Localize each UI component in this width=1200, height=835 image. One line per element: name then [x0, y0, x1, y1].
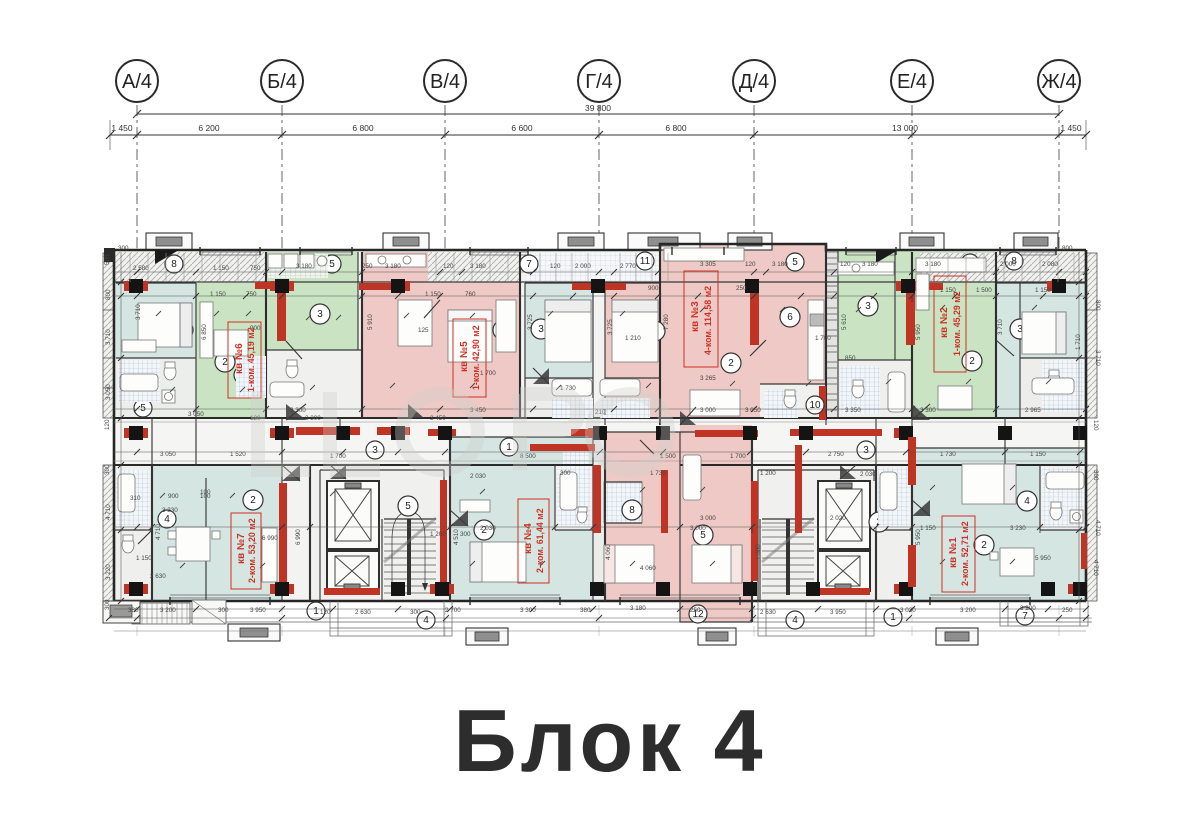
- svg-text:800: 800: [1094, 300, 1101, 311]
- svg-text:2-ком. 52,71 м2: 2-ком. 52,71 м2: [960, 521, 970, 586]
- svg-text:2 030: 2 030: [470, 473, 486, 480]
- svg-text:120: 120: [840, 261, 851, 268]
- svg-text:Ж/4: Ж/4: [1041, 71, 1076, 93]
- svg-text:2 580: 2 580: [133, 265, 149, 272]
- svg-text:4 710: 4 710: [1092, 560, 1099, 576]
- svg-text:4 710: 4 710: [155, 524, 162, 540]
- svg-text:6: 6: [787, 312, 793, 323]
- svg-text:6 200: 6 200: [198, 123, 220, 133]
- svg-text:8: 8: [629, 505, 635, 516]
- svg-text:3 230: 3 230: [1010, 525, 1026, 532]
- svg-text:кв №4: кв №4: [523, 523, 534, 554]
- svg-text:6 800: 6 800: [665, 123, 687, 133]
- svg-text:800: 800: [1062, 245, 1073, 252]
- svg-text:3 220: 3 220: [105, 564, 112, 580]
- svg-text:3 725: 3 725: [527, 314, 534, 330]
- svg-text:250: 250: [362, 263, 373, 270]
- svg-text:300: 300: [410, 609, 421, 616]
- svg-text:3: 3: [865, 301, 871, 312]
- svg-text:5 910: 5 910: [367, 314, 374, 330]
- svg-text:1 210: 1 210: [625, 335, 641, 342]
- svg-text:250: 250: [736, 285, 747, 292]
- svg-text:900: 900: [648, 285, 659, 292]
- svg-text:1 700: 1 700: [730, 453, 746, 460]
- svg-text:3 180: 3 180: [630, 605, 646, 612]
- svg-text:500: 500: [104, 254, 111, 265]
- svg-text:3 950: 3 950: [830, 609, 846, 616]
- svg-text:Е/4: Е/4: [897, 71, 927, 93]
- svg-text:1 300: 1 300: [755, 544, 762, 560]
- svg-text:3 265: 3 265: [700, 375, 716, 382]
- svg-text:6 800: 6 800: [352, 123, 374, 133]
- svg-text:120: 120: [320, 609, 331, 616]
- svg-text:3: 3: [538, 324, 544, 335]
- svg-text:кв №6: кв №6: [234, 343, 245, 374]
- svg-text:3 230: 3 230: [162, 507, 178, 514]
- svg-text:120: 120: [1092, 420, 1099, 431]
- svg-text:кв №3: кв №3: [690, 301, 701, 332]
- svg-text:3 180: 3 180: [296, 263, 312, 270]
- svg-text:4: 4: [423, 615, 429, 626]
- svg-text:2 630: 2 630: [355, 609, 371, 616]
- svg-text:2 000: 2 000: [1000, 261, 1016, 268]
- svg-text:4: 4: [1024, 496, 1030, 507]
- svg-text:13 000: 13 000: [892, 123, 918, 133]
- svg-text:3 180: 3 180: [470, 263, 486, 270]
- svg-text:11: 11: [640, 256, 651, 267]
- svg-text:7: 7: [526, 259, 532, 270]
- svg-text:Д/4: Д/4: [739, 71, 769, 93]
- svg-text:3 300: 3 300: [920, 407, 936, 414]
- svg-text:3 710: 3 710: [105, 329, 112, 345]
- svg-text:2 080: 2 080: [1042, 261, 1058, 268]
- svg-text:2: 2: [981, 540, 987, 551]
- svg-text:кв №5: кв №5: [459, 341, 470, 372]
- svg-text:1-ком. 45,19 м2: 1-ком. 45,19 м2: [246, 327, 256, 392]
- svg-text:7: 7: [1022, 611, 1028, 622]
- svg-text:100: 100: [200, 493, 211, 500]
- svg-text:1-ком. 45,29 м2: 1-ком. 45,29 м2: [952, 291, 962, 356]
- svg-text:4-ком. 114,58 м2: 4-ком. 114,58 м2: [703, 286, 713, 355]
- svg-text:3 450: 3 450: [430, 415, 446, 422]
- svg-text:А/4: А/4: [122, 71, 152, 93]
- svg-text:1 150: 1 150: [136, 555, 152, 562]
- svg-text:2 965: 2 965: [1025, 407, 1041, 414]
- svg-text:1 200: 1 200: [760, 470, 776, 477]
- svg-text:120: 120: [550, 263, 561, 270]
- svg-text:2 630: 2 630: [150, 573, 166, 580]
- svg-text:2: 2: [969, 356, 975, 367]
- svg-text:1-ком. 42,90 м2: 1-ком. 42,90 м2: [471, 325, 481, 390]
- svg-text:1: 1: [506, 442, 512, 453]
- svg-text:4 060: 4 060: [640, 565, 656, 572]
- svg-text:4: 4: [164, 514, 170, 525]
- svg-text:5: 5: [329, 259, 335, 270]
- svg-text:850: 850: [845, 355, 856, 362]
- svg-text:кв №2: кв №2: [939, 307, 950, 338]
- svg-text:Г/4: Г/4: [585, 71, 613, 93]
- svg-text:250: 250: [690, 607, 701, 614]
- svg-text:120: 120: [745, 261, 756, 268]
- svg-text:1 450: 1 450: [1060, 123, 1082, 133]
- svg-text:4: 4: [792, 615, 798, 626]
- svg-text:3 710: 3 710: [1094, 350, 1101, 366]
- svg-text:1 730: 1 730: [650, 470, 666, 477]
- svg-text:2 020: 2 020: [830, 515, 846, 522]
- svg-text:2 030: 2 030: [860, 471, 876, 478]
- svg-text:800: 800: [105, 289, 112, 300]
- svg-text:5 950: 5 950: [1035, 555, 1051, 562]
- svg-text:4 710: 4 710: [105, 504, 112, 520]
- svg-text:3 180: 3 180: [862, 261, 878, 268]
- svg-text:3: 3: [372, 445, 378, 456]
- svg-text:300: 300: [560, 470, 571, 477]
- svg-text:В/4: В/4: [430, 71, 460, 93]
- svg-text:Б/4: Б/4: [267, 71, 297, 93]
- svg-text:3 180: 3 180: [925, 261, 941, 268]
- svg-text:3 710: 3 710: [997, 319, 1004, 335]
- svg-text:6 990: 6 990: [295, 529, 302, 545]
- svg-text:250: 250: [1062, 607, 1073, 614]
- svg-text:3 350: 3 350: [845, 407, 861, 414]
- svg-text:120: 120: [104, 419, 111, 430]
- svg-text:120: 120: [443, 263, 454, 270]
- svg-text:3 200: 3 200: [960, 607, 976, 614]
- svg-text:кв №1: кв №1: [948, 537, 959, 568]
- svg-text:5: 5: [140, 403, 146, 414]
- svg-text:5: 5: [405, 501, 411, 512]
- svg-text:3 000: 3 000: [700, 515, 716, 522]
- svg-text:1 710: 1 710: [1075, 334, 1082, 350]
- svg-text:1 150: 1 150: [1035, 287, 1051, 294]
- svg-text:2: 2: [222, 357, 228, 368]
- svg-text:2: 2: [250, 495, 256, 506]
- svg-text:7 280: 7 280: [663, 314, 670, 330]
- svg-text:2 030: 2 030: [480, 525, 496, 532]
- svg-text:760: 760: [465, 291, 476, 298]
- svg-text:8: 8: [171, 259, 177, 270]
- svg-text:300: 300: [460, 531, 471, 538]
- svg-text:900: 900: [168, 493, 179, 500]
- svg-text:750: 750: [250, 265, 261, 272]
- svg-text:39 800: 39 800: [585, 103, 611, 113]
- svg-text:3: 3: [863, 445, 869, 456]
- svg-text:3 300: 3 300: [305, 415, 321, 422]
- svg-text:4 510: 4 510: [453, 529, 460, 545]
- svg-text:1 150: 1 150: [210, 291, 226, 298]
- svg-text:3 030: 3 030: [900, 607, 916, 614]
- svg-text:2: 2: [728, 358, 734, 369]
- svg-text:3 180: 3 180: [385, 263, 401, 270]
- svg-text:5: 5: [792, 257, 798, 268]
- svg-text:2-ком. 53,20 м2: 2-ком. 53,20 м2: [247, 518, 257, 583]
- svg-text:1 200: 1 200: [430, 531, 446, 538]
- svg-text:3 000: 3 000: [700, 407, 716, 414]
- svg-text:3 305: 3 305: [700, 261, 716, 268]
- svg-text:4 060: 4 060: [605, 544, 612, 560]
- svg-text:2 770: 2 770: [620, 263, 636, 270]
- svg-text:310: 310: [130, 495, 141, 502]
- svg-text:3 050: 3 050: [105, 384, 112, 400]
- svg-text:2-ком. 61,44 м2: 2-ком. 61,44 м2: [535, 508, 545, 573]
- svg-text:кв №7: кв №7: [236, 533, 247, 564]
- svg-text:300: 300: [104, 464, 111, 475]
- svg-text:380: 380: [580, 607, 591, 614]
- svg-text:3 725: 3 725: [607, 319, 614, 335]
- svg-text:6 600: 6 600: [511, 123, 533, 133]
- svg-text:6 990: 6 990: [262, 535, 278, 542]
- svg-text:300: 300: [104, 599, 111, 610]
- svg-text:5 610: 5 610: [841, 314, 848, 330]
- svg-text:3 200: 3 200: [1020, 605, 1036, 612]
- svg-text:125: 125: [418, 327, 429, 334]
- svg-text:3 200: 3 200: [160, 607, 176, 614]
- svg-text:1 150: 1 150: [920, 525, 936, 532]
- svg-text:1 450: 1 450: [111, 123, 133, 133]
- svg-text:3 000: 3 000: [690, 525, 706, 532]
- svg-text:3 180: 3 180: [772, 261, 788, 268]
- svg-text:1 700: 1 700: [480, 370, 496, 377]
- svg-text:5 950: 5 950: [915, 324, 922, 340]
- svg-text:3: 3: [317, 309, 323, 320]
- svg-text:3 950: 3 950: [250, 607, 266, 614]
- svg-text:6 850: 6 850: [201, 324, 208, 340]
- svg-text:10: 10: [809, 400, 821, 411]
- svg-text:2 700: 2 700: [445, 607, 461, 614]
- svg-text:4 710: 4 710: [1094, 520, 1101, 536]
- svg-text:1: 1: [313, 606, 319, 617]
- svg-text:1 150: 1 150: [213, 265, 229, 272]
- svg-text:300: 300: [218, 607, 229, 614]
- svg-text:300: 300: [1092, 470, 1099, 481]
- svg-text:2 630: 2 630: [760, 609, 776, 616]
- svg-text:3 710: 3 710: [135, 304, 142, 320]
- svg-text:1: 1: [890, 612, 896, 623]
- svg-text:2 000: 2 000: [575, 263, 591, 270]
- svg-text:300: 300: [118, 245, 129, 252]
- svg-text:1 500: 1 500: [976, 287, 992, 294]
